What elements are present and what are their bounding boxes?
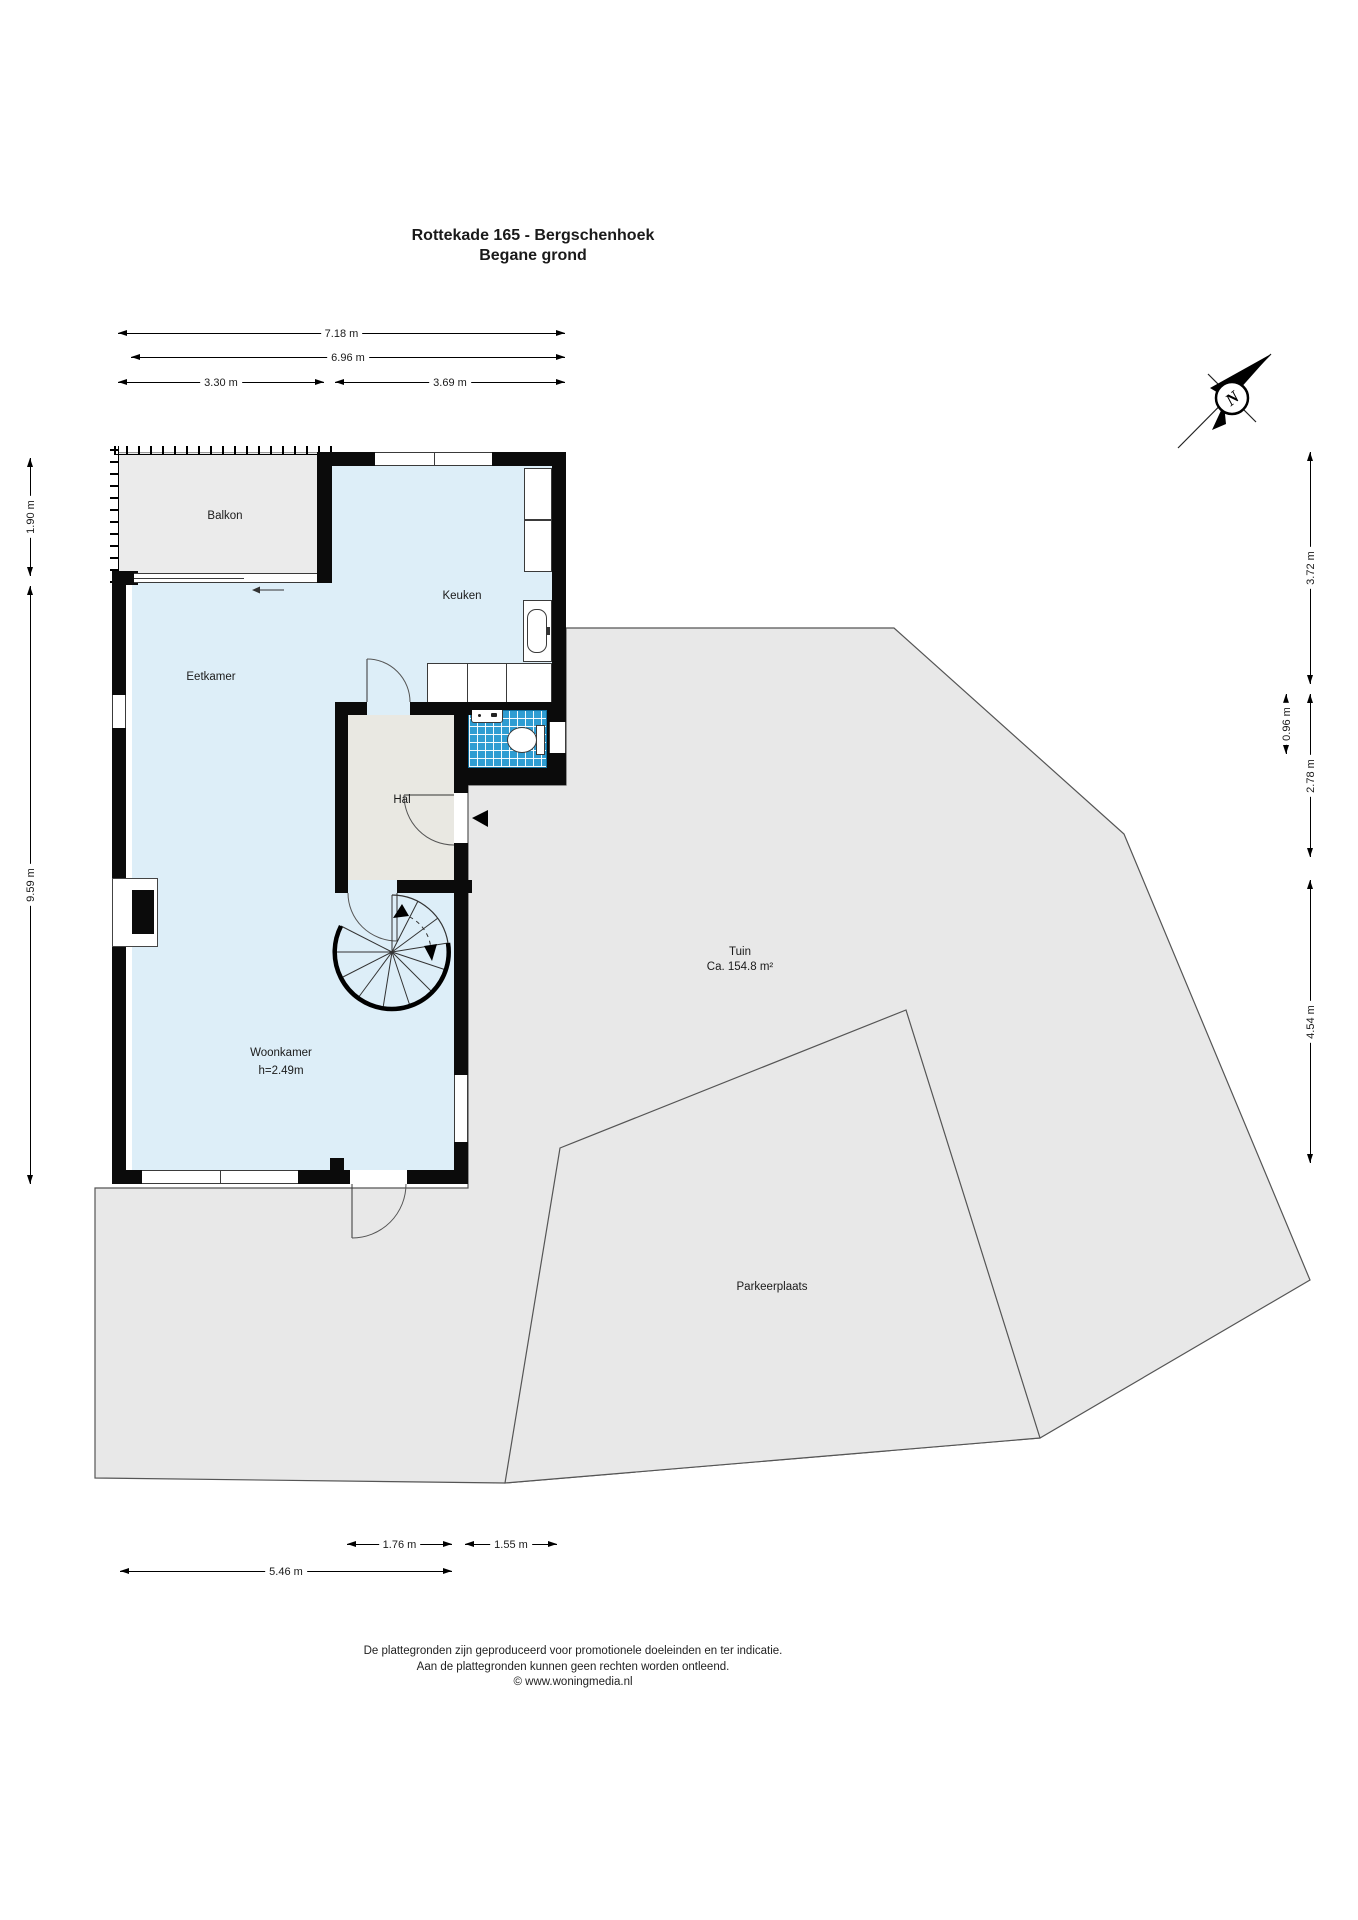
dim-left-190: 1.90 m [30,458,31,576]
balkon-sliding-door [134,573,317,583]
parkeerplaats-area-shape [505,1010,1040,1483]
wall-hal-bottom-b [397,880,472,893]
compass-north-icon: N [1178,354,1271,448]
woonkamer-right-window [454,1075,468,1142]
kitchen-cabinet-upper [524,468,552,520]
wall-hal-bottom-a [335,880,348,893]
wall-bottom-stub [330,1158,344,1170]
entrance-arrow-icon [472,810,488,827]
parkeerplaats-label: Parkeerplaats [737,1281,808,1293]
wall-balkon-keuken-divider [317,452,332,583]
woonkamer-bottom-window [142,1170,298,1184]
hal-label: Hal [393,794,410,806]
footer-line-1: De plattegronden zijn geproduceerd voor … [223,1644,923,1660]
dim-top-330: 3.30 m [118,382,324,383]
dim-right-278: 2.78 m [1310,694,1311,857]
balkon-railing-top [114,446,336,455]
title-address: Rottekade 165 - Bergschenhoek [183,226,883,246]
keuken-label: Keuken [442,590,481,602]
wall-toilet-top [468,702,566,710]
balkon-label: Balkon [207,510,242,522]
kitchen-counter-bottom [427,663,552,703]
wall-left-upper [112,571,126,695]
toilet-bowl [507,727,537,753]
kitchen-sink-unit [523,600,552,662]
toilet-sink-faucet-icon [491,713,497,717]
wall-bottom-left [112,1170,142,1184]
dim-top-696: 6.96 m [131,357,565,358]
dim-top-369: 3.69 m [335,382,565,383]
dim-left-959: 9.59 m [30,586,31,1184]
wall-bottom-middle [298,1170,350,1184]
compass-north-label: N [1221,387,1244,411]
wall-toilet-bottom [454,768,566,785]
wall-left-middle [112,728,126,878]
page-title: Rottekade 165 - Bergschenhoek Begane gro… [183,226,883,266]
woonkamer-label: Woonkamer [250,1047,312,1059]
dim-right-454: 4.54 m [1310,880,1311,1163]
toilet-window [549,722,566,753]
footer-copyright: © www.woningmedia.nl [223,1675,923,1691]
wall-woonkamer-right-lower [454,1142,468,1184]
woonkamer-height-label: h=2.49m [258,1065,303,1077]
wall-hal-left [335,702,348,893]
title-floor: Begane grond [183,246,883,266]
kitchen-sink-basin [527,609,547,653]
keuken-window [375,452,492,466]
dim-bottom-176: 1.76 m [347,1544,452,1545]
kitchen-cabinet-lower [524,520,552,572]
dim-bottom-546: 5.46 m [120,1571,452,1572]
door-woonkamer-exterior [352,1184,406,1238]
wall-left-lower [112,947,126,1184]
floorplan-page: N Rottekade 165 - Bergschenhoek Begane g… [0,0,1358,1920]
eetkamer-label: Eetkamer [186,671,235,683]
wall-right [552,452,566,722]
dim-top-718: 7.18 m [118,333,565,334]
wall-hal-top-a [335,702,367,715]
toilet-tank [536,725,545,755]
tuin-area-label: Ca. 154.8 m² [707,961,773,973]
footer-line-2: Aan de plattegronden kunnen geen rechten… [223,1660,923,1676]
footer-disclaimer: De plattegronden zijn geproduceerd voor … [223,1644,923,1691]
kitchen-faucet-icon [546,627,550,635]
eetkamer-left-window [112,695,126,728]
chimney-flue [132,890,154,934]
tuin-label: Tuin [729,946,751,958]
wall-woonkamer-right-upper [454,893,468,1075]
dim-right-372: 3.72 m [1310,452,1311,684]
balkon-railing-left [110,446,119,583]
dim-bottom-155: 1.55 m [465,1544,557,1545]
dim-right-096: 0.96 m [1286,694,1287,754]
